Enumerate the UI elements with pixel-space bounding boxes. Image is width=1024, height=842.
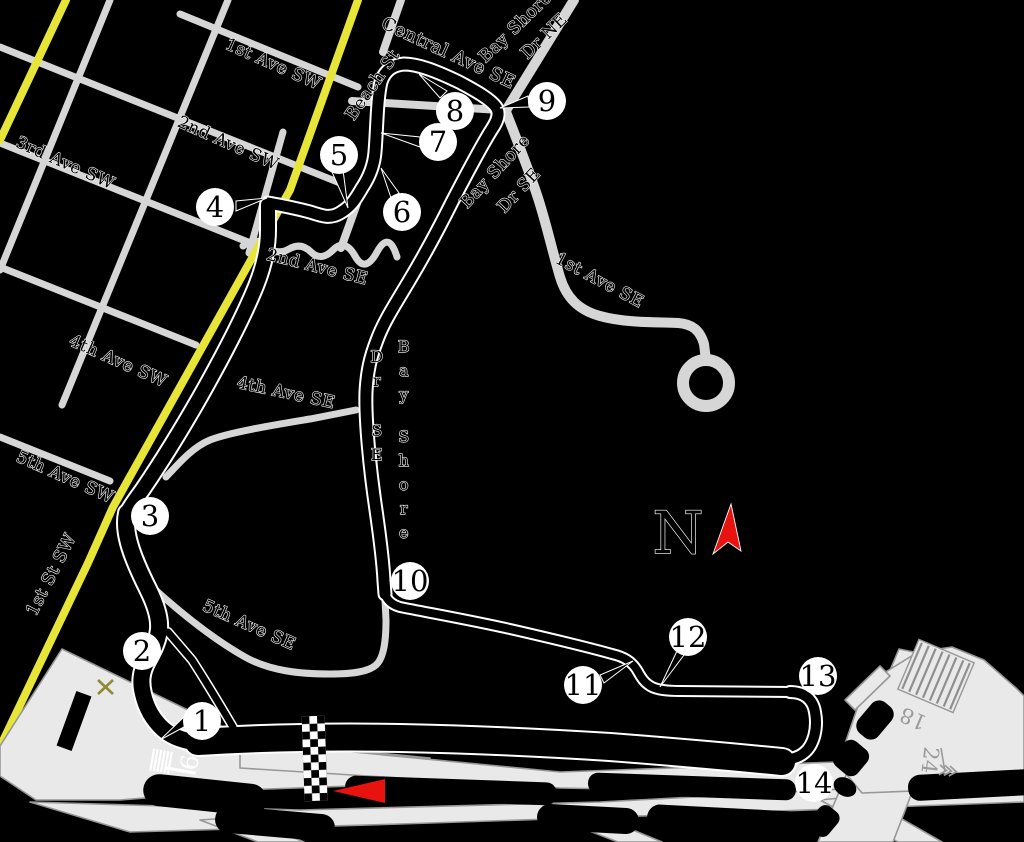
svg-text:4: 4	[206, 190, 224, 224]
turn-marker-12: 12	[669, 618, 707, 656]
svg-text:8: 8	[446, 94, 464, 128]
start-finish-line	[302, 716, 328, 802]
compass-arrow-icon	[713, 504, 741, 554]
svg-text:6: 6	[393, 195, 411, 229]
turn-marker-8: 8	[436, 92, 474, 130]
street-label-5th-ave-se: 5th Ave SE	[199, 596, 298, 655]
street-label-2nd-ave-sw: 2nd Ave SW	[174, 112, 282, 175]
svg-text:10: 10	[392, 564, 429, 598]
svg-text:7: 7	[429, 125, 447, 159]
street-1st-ave-se	[506, 112, 706, 360]
circuit-map: 18 24	[0, 0, 1024, 842]
svg-text:13: 13	[800, 659, 837, 693]
turn-6-pointer	[381, 168, 399, 198]
svg-text:11: 11	[565, 668, 602, 702]
svg-text:1: 1	[193, 704, 211, 738]
street-label-4th-ave-se: 4th Ave SE	[235, 373, 337, 413]
turn-marker-14: 14	[795, 764, 833, 802]
street-4th-ave-sw	[0, 267, 196, 345]
street-vertical-a	[0, 0, 110, 270]
turn-5-pointer	[332, 170, 348, 208]
north-compass: N	[653, 499, 741, 567]
turn-marker-11: 11	[564, 666, 602, 704]
turn-marker-9: 9	[528, 82, 566, 120]
svg-text:9: 9	[538, 84, 556, 118]
track-surface	[126, 64, 816, 762]
turn-marker-3: 3	[131, 497, 169, 535]
turn-marker-5: 5	[320, 136, 358, 174]
turn-marker-13: 13	[799, 657, 837, 695]
street-label-3rd-ave-sw: 3rd Ave SW	[13, 133, 118, 194]
turn-marker-2: 2	[123, 632, 161, 670]
turn-7-pointer	[381, 133, 420, 147]
turn-marker-4: 4	[196, 188, 234, 226]
pier-roundabout	[683, 360, 729, 406]
turn-marker-6: 6	[383, 193, 421, 231]
turn-marker-1: 1	[183, 702, 221, 740]
turn-12-pointer	[660, 651, 684, 687]
svg-text:5: 5	[330, 138, 348, 172]
svg-text:14: 14	[796, 766, 833, 800]
compass-n-label: N	[653, 499, 704, 567]
svg-text:24: 24	[916, 745, 943, 774]
svg-text:2: 2	[133, 634, 151, 668]
street-label-bay-shore-vertical-bayshore: BayShore	[398, 337, 410, 542]
svg-text:3: 3	[141, 499, 159, 533]
turn-marker-10: 10	[391, 562, 429, 600]
svg-text:12: 12	[670, 620, 707, 654]
race-track	[126, 64, 816, 762]
turn-pointers	[160, 74, 684, 740]
turn-11-pointer	[600, 661, 633, 683]
